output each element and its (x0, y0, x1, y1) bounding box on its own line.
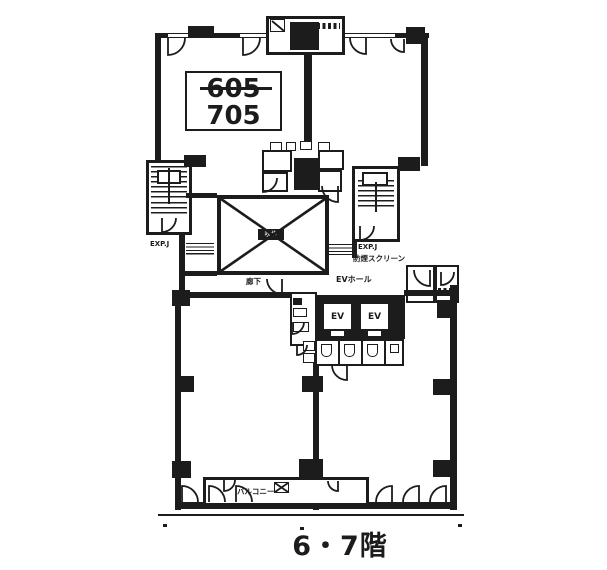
service-room (406, 265, 435, 303)
fixture-box (262, 150, 292, 172)
elevator-car-2: EV (359, 302, 390, 331)
wall-corridor-left (179, 235, 185, 295)
exp-joint-hatch (186, 243, 214, 255)
fixture-box (293, 308, 307, 317)
wall-top-lower (404, 290, 452, 296)
toilet-divider (361, 339, 363, 366)
elevator-1-label: EV (331, 312, 344, 322)
elevator-2-label: EV (368, 312, 381, 322)
smoke-screen-label: 防煙スクリーン (353, 255, 405, 263)
shaft-wall (304, 55, 312, 147)
corridor-label: 廊下 (246, 278, 261, 286)
elevator-door-gap (368, 331, 381, 336)
void-label: 吹抜 (265, 231, 278, 238)
toilet-fixture (321, 344, 332, 357)
column (299, 459, 323, 479)
wall-segment (186, 193, 217, 198)
fixture-box (286, 142, 296, 151)
elevator-door-gap (331, 331, 344, 336)
illegible-text (306, 23, 340, 29)
stair-divider (168, 168, 170, 204)
column (188, 26, 214, 38)
elevator-car-1: EV (322, 302, 353, 331)
fixture-box (318, 150, 344, 170)
toilet-divider (384, 339, 386, 366)
floor-plan: 605 705 EXP.J 吹抜 EXP.J 防煙スクリーン (0, 0, 607, 570)
toilet-fixture (390, 344, 399, 353)
window-symbol (270, 19, 285, 32)
window-arc (403, 486, 419, 502)
fixture-box (318, 142, 330, 151)
fixture-box (318, 170, 342, 192)
column (433, 379, 451, 395)
survey-mark (163, 524, 167, 527)
unit-number-new: 705 (185, 103, 282, 129)
fixture-box (262, 172, 288, 192)
exp-joint-hatch (329, 244, 355, 255)
door-arc (350, 38, 366, 54)
wall-top-lower (179, 292, 306, 298)
door-arc (391, 39, 404, 52)
strikethrough-line (200, 87, 272, 90)
balcony-label: バルコニー (237, 488, 274, 496)
fixture-box (293, 322, 309, 332)
toilet-divider (338, 339, 340, 366)
window-band (345, 33, 395, 38)
toilet-fixture (367, 344, 378, 357)
stair-divider (375, 182, 377, 212)
wall-right-upper (421, 35, 428, 166)
exp-joint-label-right: EXP.J (358, 244, 377, 251)
void-label-chip: 吹抜 (258, 229, 284, 240)
wall-left-upper (155, 33, 161, 165)
survey-mark (458, 524, 462, 527)
door-arc (243, 38, 260, 55)
exp-joint-label-left: EXP.J (150, 241, 169, 248)
column (172, 461, 191, 478)
toilet-fixture (344, 344, 355, 357)
column (398, 157, 420, 171)
door-arc (332, 365, 347, 380)
ev-hall-label: EVホール (336, 276, 372, 284)
column (433, 460, 451, 477)
window-arc (182, 486, 198, 502)
fixture-box (270, 142, 282, 151)
fixture-fill (293, 298, 302, 305)
caption-floor: 6・7階 (270, 533, 410, 560)
fixture-box (303, 341, 315, 351)
wall-right-lower (450, 285, 457, 510)
window-arc (376, 486, 392, 502)
door-arc (168, 38, 185, 55)
survey-mark (300, 527, 304, 530)
wall-segment (185, 271, 217, 276)
window-symbol (274, 482, 289, 493)
column (302, 376, 323, 392)
column (184, 155, 206, 167)
fixture-box (300, 141, 312, 150)
window-arc (430, 486, 446, 502)
pipe-shaft (294, 158, 318, 190)
ground-line (158, 514, 464, 516)
fixture-box (303, 353, 315, 363)
column (181, 376, 194, 392)
